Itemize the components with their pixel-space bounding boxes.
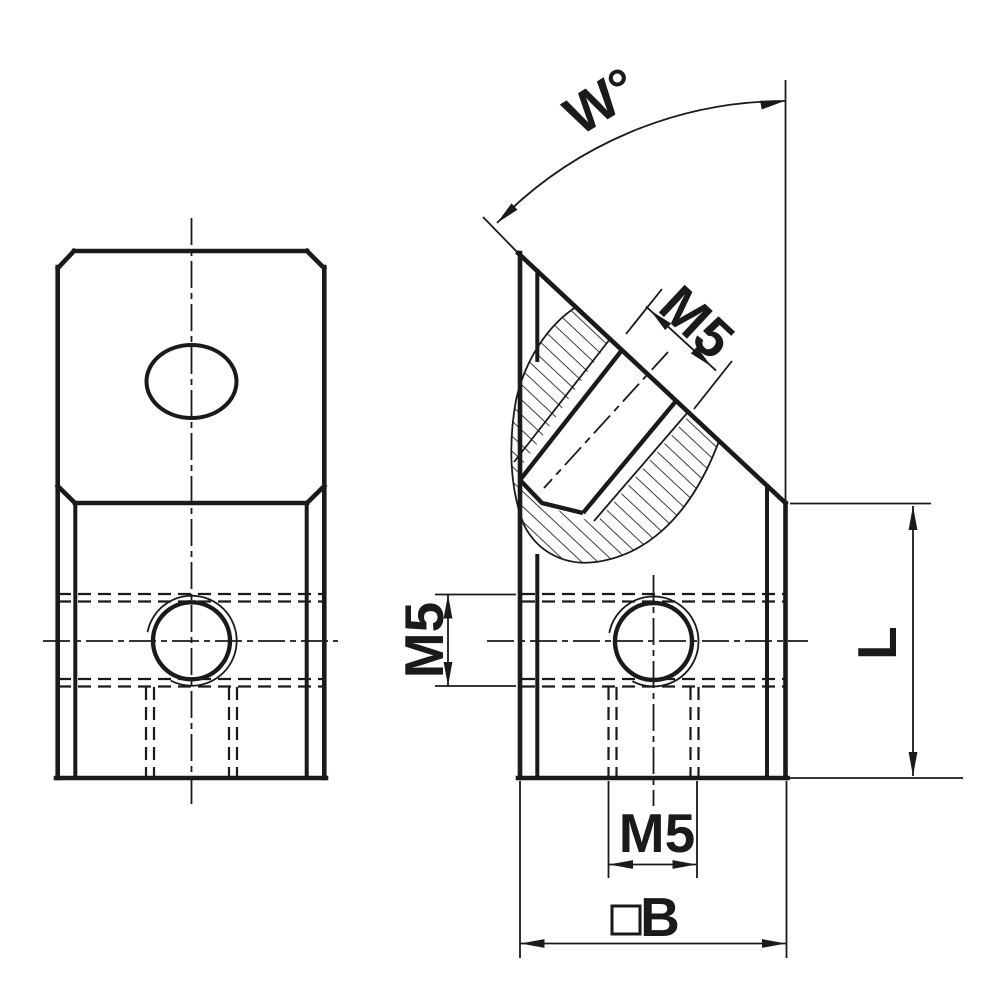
angle-label: W°	[553, 55, 649, 147]
arrowhead	[521, 939, 545, 948]
arrowhead	[909, 752, 918, 776]
length-dimension: L	[788, 504, 963, 779]
front-centerlines	[43, 218, 338, 808]
length-label: L	[846, 626, 908, 660]
incline-extension-line	[483, 217, 518, 253]
width-label: B	[640, 886, 680, 948]
drawing-canvas: W° M5 M5 L	[0, 0, 1000, 1000]
side-centerlines	[487, 575, 808, 806]
arrowhead	[762, 939, 786, 948]
side-view	[487, 253, 808, 806]
angle-arc	[497, 101, 786, 223]
technical-drawing: W° M5 M5 L	[0, 0, 1000, 1000]
side-hole-label: M5	[393, 602, 455, 678]
arrowhead	[909, 506, 918, 530]
bottom-hole-label: M5	[619, 802, 695, 864]
arrowhead	[760, 101, 784, 110]
front-view	[43, 218, 338, 808]
square-symbol	[612, 906, 640, 934]
angled-hole-label: M5	[648, 273, 746, 370]
